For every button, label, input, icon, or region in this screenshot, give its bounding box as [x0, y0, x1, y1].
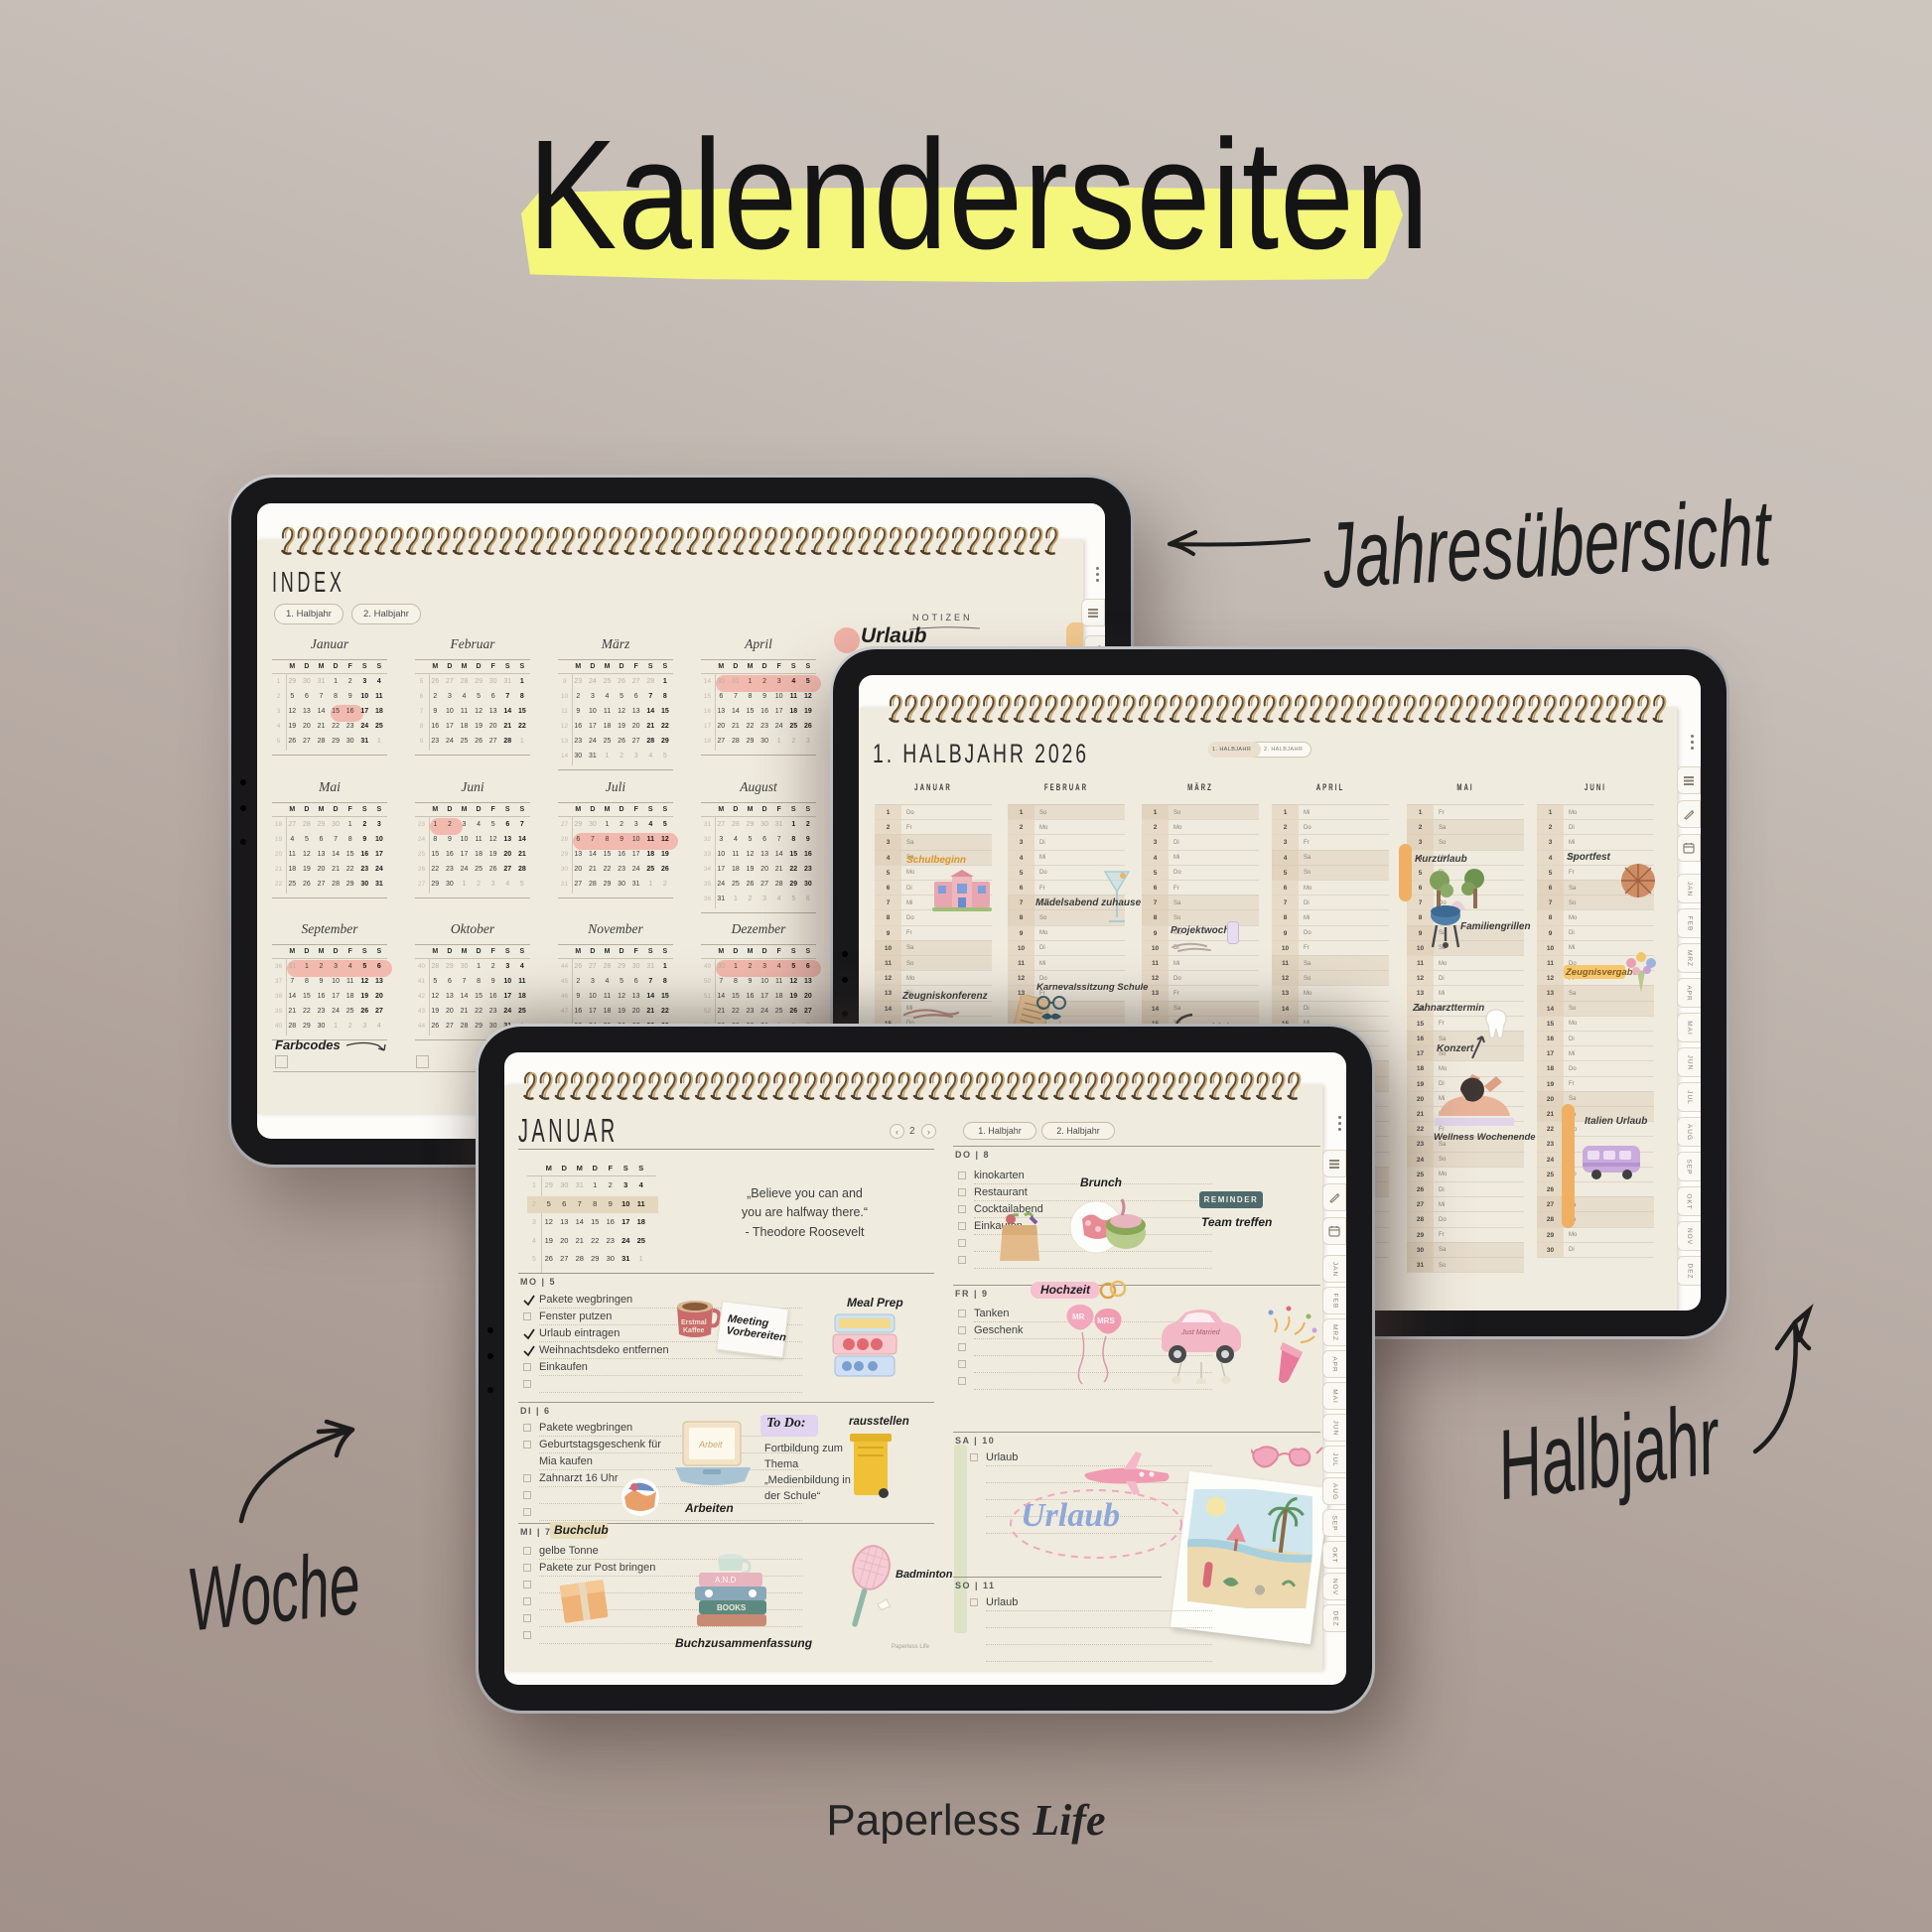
svg-text:MR: MR: [1072, 1312, 1085, 1321]
svg-text:Just Married: Just Married: [1180, 1329, 1221, 1336]
svg-text:MRS: MRS: [1097, 1316, 1115, 1325]
svg-text:Kaffee: Kaffee: [683, 1327, 705, 1334]
svg-text:Erstmal: Erstmal: [681, 1319, 707, 1326]
svg-text:Arbeit: Arbeit: [698, 1440, 723, 1449]
svg-text:A.N.D: A.N.D: [715, 1576, 737, 1585]
svg-text:BOOKS: BOOKS: [717, 1603, 747, 1612]
